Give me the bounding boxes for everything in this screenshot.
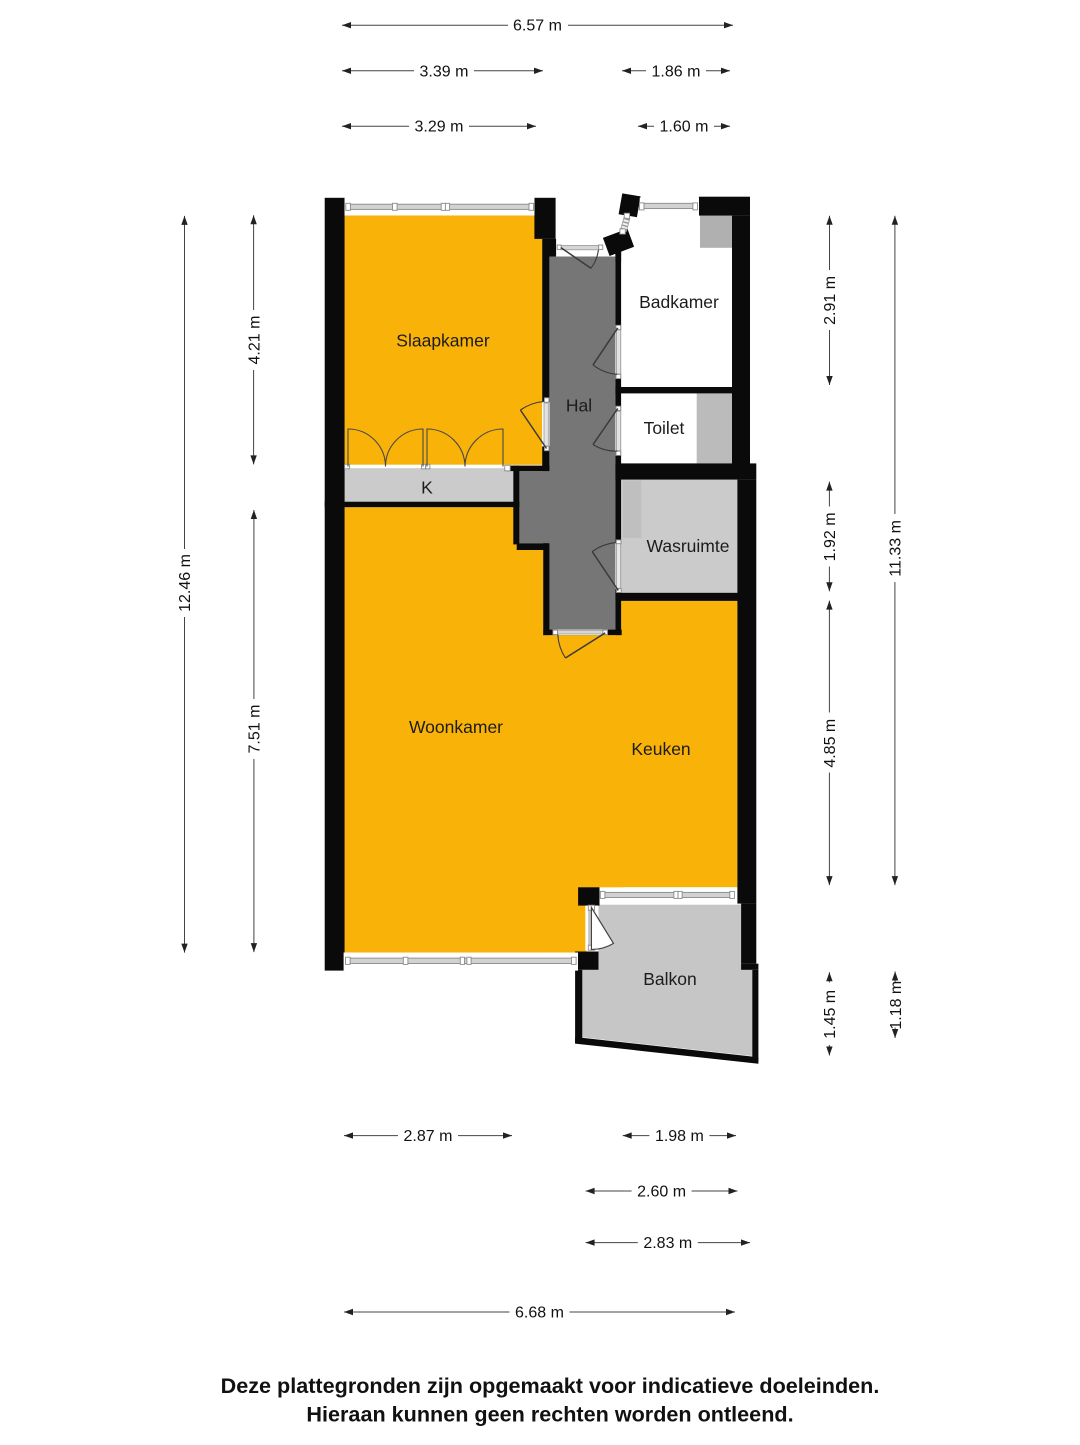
- svg-text:2.87 m: 2.87 m: [404, 1128, 453, 1145]
- svg-text:1.45 m: 1.45 m: [822, 990, 839, 1039]
- svg-text:2.60 m: 2.60 m: [637, 1184, 686, 1201]
- svg-text:Wasruimte: Wasruimte: [647, 536, 730, 556]
- svg-text:K: K: [421, 478, 433, 498]
- svg-text:4.85 m: 4.85 m: [822, 719, 839, 768]
- svg-text:6.68 m: 6.68 m: [515, 1305, 564, 1322]
- svg-text:Toilet: Toilet: [644, 418, 685, 438]
- svg-text:Slaapkamer: Slaapkamer: [396, 331, 490, 351]
- svg-text:2.91 m: 2.91 m: [822, 276, 839, 325]
- svg-text:1.98 m: 1.98 m: [655, 1128, 704, 1145]
- svg-text:1.18 m: 1.18 m: [888, 981, 905, 1030]
- svg-text:Keuken: Keuken: [631, 739, 690, 759]
- svg-text:3.39 m: 3.39 m: [420, 63, 469, 80]
- svg-text:4.21 m: 4.21 m: [246, 316, 263, 365]
- svg-text:7.51 m: 7.51 m: [247, 705, 264, 754]
- svg-text:Woonkamer: Woonkamer: [409, 717, 503, 737]
- svg-text:Hal: Hal: [566, 396, 592, 416]
- svg-text:Badkamer: Badkamer: [639, 292, 719, 312]
- svg-text:1.86 m: 1.86 m: [652, 63, 701, 80]
- svg-text:Balkon: Balkon: [643, 969, 697, 989]
- svg-text:3.29 m: 3.29 m: [415, 119, 464, 136]
- svg-text:6.57 m: 6.57 m: [513, 18, 562, 35]
- svg-text:12.46 m: 12.46 m: [177, 554, 194, 612]
- svg-text:2.83 m: 2.83 m: [643, 1235, 692, 1252]
- svg-text:11.33 m: 11.33 m: [888, 520, 905, 577]
- svg-text:Deze plattegronden zijn opgema: Deze plattegronden zijn opgemaakt voor i…: [221, 1373, 880, 1398]
- svg-text:1.60 m: 1.60 m: [660, 119, 709, 136]
- svg-text:Hieraan kunnen geen rechten wo: Hieraan kunnen geen rechten worden ontle…: [306, 1402, 793, 1427]
- svg-text:1.92 m: 1.92 m: [822, 512, 839, 561]
